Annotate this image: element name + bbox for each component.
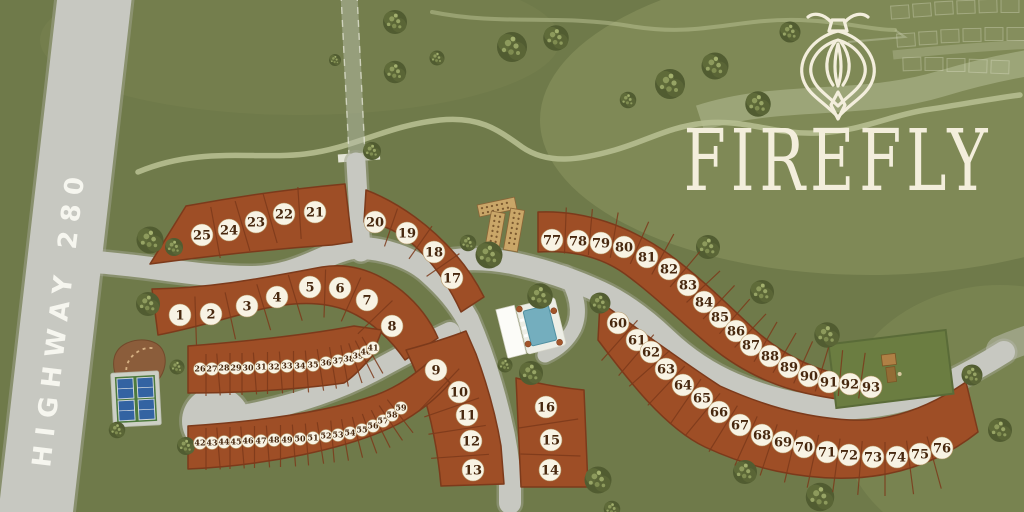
lot-number: 29 [230,363,242,373]
lot-number: 28 [218,363,230,373]
lot-number: 27 [206,364,217,374]
lot-number: 88 [761,349,779,364]
ghost-lot [1001,0,1019,13]
lot-marker: 48 [268,434,281,447]
lot-marker: 53 [332,429,345,442]
lot-number: 55 [356,425,367,435]
lot-number: 18 [425,245,443,260]
lot-marker: 74 [886,446,908,468]
lot-marker: 71 [816,441,838,463]
tree-icon [497,32,527,62]
tree-icon [109,422,126,439]
lot-marker: 29 [230,362,243,375]
lot-number: 8 [387,319,396,334]
lot-marker: 80 [613,236,635,258]
ghost-lot [925,58,943,71]
tree-icon [136,292,160,316]
lot-marker: 60 [607,312,629,334]
lot-number: 26 [194,364,206,374]
tree-icon [655,69,685,99]
lot-marker: 9 [425,359,447,381]
lot-number: 63 [657,362,675,377]
lot-number: 45 [230,437,241,447]
lot-number: 77 [543,233,561,248]
lot-number: 24 [220,223,238,238]
lot-number: 75 [911,447,929,462]
lot-number: 31 [255,362,266,372]
lot-marker: 81 [636,246,658,268]
tree-icon [696,235,720,259]
lot-number: 15 [542,433,560,448]
pickleball-courts [111,371,162,427]
tree-icon [363,142,381,160]
tree-icon [460,235,477,252]
lot-number: 33 [281,361,293,371]
lot-marker: 20 [364,211,386,233]
lot-number: 32 [268,362,279,372]
lot-marker: 11 [456,404,478,426]
ghost-lot [1007,28,1024,41]
lot-number: 73 [864,450,882,465]
lot-marker: 36 [320,357,333,370]
ghost-lot [963,28,981,41]
lot-marker: 91 [818,371,840,393]
lot-marker: 67 [729,414,751,436]
lot-number: 50 [294,434,306,444]
lot-marker: 10 [448,381,470,403]
north-stub-road [356,162,361,252]
lot-marker: 17 [441,267,463,289]
lot-marker: 63 [655,358,677,380]
tree-icon [165,238,183,256]
lot-number: 21 [306,205,324,220]
lot-number: 54 [344,428,356,438]
playground-icon [881,353,896,366]
lot-marker: 93 [860,376,882,398]
lot-marker: 6 [329,277,351,299]
lot-marker: 21 [304,201,326,223]
lot-marker: 79 [590,232,612,254]
lot-number: 2 [206,307,215,322]
lot-marker: 64 [672,374,694,396]
lot-number: 34 [294,361,306,371]
lot-marker: 78 [567,230,589,252]
lot-number: 12 [462,434,480,449]
lot-marker: 88 [759,345,781,367]
lot-marker: 4 [266,286,288,308]
lot-number: 35 [307,360,318,370]
lot-marker: 14 [539,459,561,481]
lot-number: 13 [464,463,482,478]
lot-number: 76 [933,441,951,456]
tree-icon [519,361,543,385]
lot-marker: 66 [708,401,730,423]
lot-marker: 75 [909,443,931,465]
ghost-lot [903,57,921,71]
ghost-lot [897,33,916,47]
tree-icon [137,227,164,254]
lot-marker: 47 [255,435,268,448]
lot-number: 79 [592,236,610,251]
playground-icon [886,367,897,383]
lot-marker: 72 [838,444,860,466]
firefly-site-map: 2524232221201918171234567891011121316151… [0,0,1024,512]
lot-marker: 46 [242,435,255,448]
lot-number: 52 [320,431,331,441]
tree-icon [962,365,983,386]
tree-icon [590,293,611,314]
ghost-lot [979,0,997,13]
lot-number: 10 [450,385,468,400]
lot-number: 49 [281,435,293,445]
lot-number: 11 [458,408,476,423]
tree-icon [498,358,513,373]
lot-number: 23 [247,215,265,230]
lot-number: 46 [242,436,254,446]
lot-number: 53 [332,430,344,440]
lot-number: 17 [443,271,461,286]
tree-icon [988,418,1012,442]
lot-marker: 92 [839,373,861,395]
lot-marker: 8 [381,315,403,337]
lot-marker: 25 [191,224,213,246]
tree-icon [170,360,185,375]
lot-marker: 30 [242,362,255,375]
ghost-lot [891,5,910,19]
lot-marker: 26 [194,363,207,376]
lot-marker: 87 [740,334,762,356]
lot-marker: 35 [307,359,320,372]
lot-marker: 82 [658,258,680,280]
tree-icon [543,25,569,51]
lot-marker: 27 [206,363,219,376]
tree-icon [430,51,445,66]
tree-icon [780,22,801,43]
lot-marker: 34 [294,360,307,373]
faded-exit-road [1000,334,1024,350]
ghost-lot [991,60,1009,74]
lot-marker: 44 [218,436,231,449]
tree-icon [383,10,407,34]
lot-number: 80 [615,240,633,255]
lot-number: 83 [679,278,697,293]
community-name: FIREFLY [684,112,993,211]
lot-marker: 1 [169,304,191,326]
ghost-lot [957,0,975,14]
lot-number: 22 [275,207,293,222]
ghost-lot [935,1,954,15]
lot-number: 60 [609,316,627,331]
lot-number: 74 [888,450,906,465]
lot-number: 66 [710,405,728,420]
lot-marker: 90 [798,365,820,387]
lot-number: 1 [175,308,184,323]
lot-number: 70 [795,440,813,455]
lot-number: 42 [194,438,205,448]
lot-marker: 12 [460,430,482,452]
lot-marker: 52 [320,430,333,443]
lot-marker: 22 [273,203,295,225]
tree-icon [620,92,637,109]
lot-number: 65 [693,391,711,406]
lot-number: 9 [431,363,440,378]
tree-icon [329,54,341,66]
lot-marker: 83 [677,274,699,296]
lot-number: 36 [320,358,332,368]
lot-marker: 49 [281,434,294,447]
lot-marker: 28 [218,362,231,375]
tree-icon [527,283,553,309]
lot-number: 82 [660,262,678,277]
lot-number: 20 [366,215,384,230]
lot-number: 59 [395,403,407,413]
tree-icon [384,61,407,84]
lot-marker: 70 [793,436,815,458]
lot-number: 37 [332,356,343,366]
lot-number: 87 [742,338,760,353]
lot-marker: 5 [299,276,321,298]
ghost-lot [913,3,932,17]
lot-marker: 73 [862,446,884,468]
lot-number: 91 [820,375,838,390]
lot-number: 72 [840,448,858,463]
lot-marker: 15 [540,429,562,451]
lot-marker: 33 [281,360,294,373]
lot-number: 44 [218,437,230,447]
lot-number: 6 [335,281,344,296]
lot-marker: 45 [230,436,243,449]
lot-number: 81 [638,250,656,265]
lot-number: 14 [541,463,559,478]
lot-marker: 69 [772,431,794,453]
lot-marker: 59 [395,402,408,415]
lot-marker: 31 [255,361,268,374]
lot-number: 92 [841,377,859,392]
lot-number: 47 [255,436,266,446]
ghost-lot [969,59,987,73]
playground-park [829,330,954,408]
lot-number: 25 [193,228,211,243]
tree-icon [733,460,757,484]
lot-number: 7 [362,293,371,308]
lot-number: 4 [272,290,281,305]
lot-marker: 32 [268,361,281,374]
lot-number: 19 [398,226,416,241]
lot-marker: 13 [462,459,484,481]
lot-number: 30 [242,363,254,373]
lot-marker: 18 [423,241,445,263]
lot-number: 67 [731,418,749,433]
lot-marker: 50 [294,433,307,446]
lot-number: 89 [780,360,798,375]
lot-number: 68 [753,428,771,443]
lot-marker: 54 [344,427,357,440]
lot-marker: 41 [367,342,380,355]
lot-marker: 24 [218,219,240,241]
lot-number: 71 [818,445,836,460]
ghost-lot [919,31,938,45]
lot-number: 64 [674,378,692,393]
lot-number: 86 [727,324,745,339]
site-plan-map: 2524232221201918171234567891011121316151… [0,0,1024,512]
lot-marker: 7 [356,289,378,311]
lot-marker: 16 [535,396,557,418]
lot-marker: 68 [751,424,773,446]
tree-icon [806,483,835,512]
lot-marker: 3 [236,295,258,317]
lot-number: 3 [242,299,251,314]
lot-number: 90 [800,369,818,384]
lot-number: 41 [367,343,378,353]
ghost-lot [941,29,959,43]
tree-icon [177,437,195,455]
lot-marker: 77 [541,229,563,251]
lot-marker: 62 [640,341,662,363]
lot-marker: 43 [206,437,219,450]
tree-icon [814,322,840,348]
lot-marker: 2 [200,303,222,325]
lot-number: 85 [711,310,729,325]
ghost-lot [985,28,1003,41]
lot-marker: 42 [194,437,207,450]
lot-number: 69 [774,435,792,450]
lot-marker: 76 [931,437,953,459]
tree-icon [585,467,612,494]
lot-marker: 51 [307,432,320,445]
lot-number: 93 [862,380,880,395]
lot-marker: 23 [245,211,267,233]
lot-number: 43 [206,438,218,448]
tree-icon [750,280,774,304]
lot-marker: 89 [778,356,800,378]
tree-icon [702,53,729,80]
tree-icon [476,242,503,269]
lot-marker: 19 [396,222,418,244]
lot-number: 48 [268,435,280,445]
lot-number: 62 [642,345,660,360]
lot-number: 84 [695,295,713,310]
ghost-lot [947,59,965,72]
lot-number: 78 [569,234,587,249]
lot-number: 16 [537,400,555,415]
lot-number: 5 [305,280,314,295]
lot-number: 51 [307,433,318,443]
